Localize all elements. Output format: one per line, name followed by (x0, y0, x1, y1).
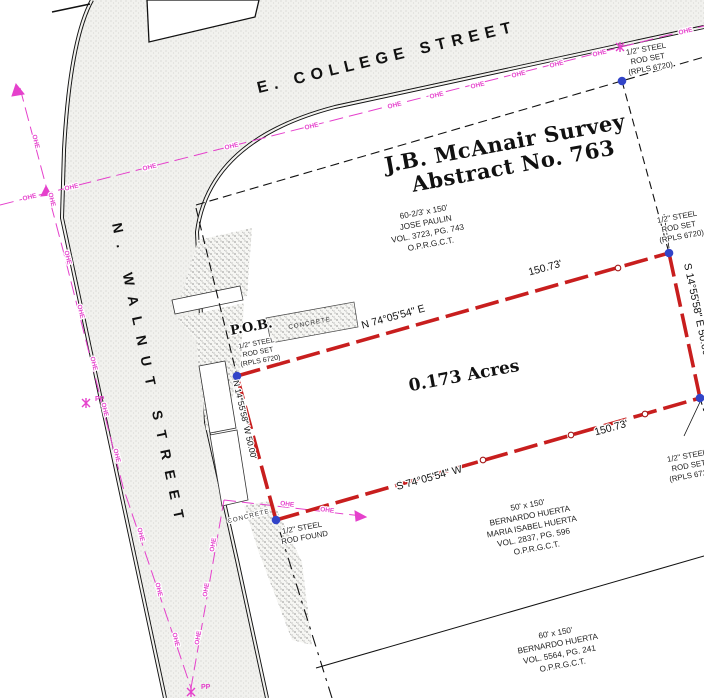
rod-set-note-se: 1/2" STEEL ROD SET (RPLS 6720) (665, 447, 704, 484)
rod-set-note-ne: 1/2" STEEL ROD SET (RPLS 6720) (655, 208, 704, 245)
adjoiner-huerta-south: 50' x 150' BERNARDO HUERTA MARIA ISABEL … (482, 492, 583, 561)
power-pole-icon (82, 398, 90, 408)
ohe-label: OHE (511, 69, 527, 79)
guy-anchor-icon (355, 511, 366, 521)
leader-se-rod (684, 402, 700, 436)
adjoiner-paulin: 60-2/3' x 150' JOSE PAULIN VOL. 3723, PG… (387, 200, 469, 255)
ohe-label: OHE (429, 90, 445, 100)
steel-rod-icon (696, 394, 704, 403)
bearing-south: S 74°05'54" W (395, 463, 464, 493)
plat-drawing: E. COLLEGE STREET N. WALNUT STREET J.B. … (0, 0, 704, 698)
distance-south: 150.73' (593, 418, 629, 439)
ohe-label: OHE (320, 506, 335, 515)
adjoiner-huerta-far-south: 60' x 150' BERNARDO HUERTA VOL. 5564, PG… (515, 621, 605, 677)
rod-set-note-top: 1/2" STEEL ROD SET (RPLS 6720) (624, 40, 674, 77)
steel-rod-icon (272, 516, 281, 525)
ohe-label: OHE (280, 500, 295, 509)
fence-post-icon (480, 457, 486, 463)
pp-label: PP (201, 684, 211, 691)
bearing-east: S 14°55'58" E 50.00' (681, 262, 704, 358)
rod-found-note-sw: 1/2" STEEL ROD FOUND (279, 519, 329, 546)
survey-plat: E. COLLEGE STREET N. WALNUT STREET J.B. … (0, 0, 704, 698)
ohe-label: OHE (22, 192, 38, 202)
survey-title: J.B. McAnair Survey Abstract No. 763 (380, 108, 631, 201)
bearing-north: N 74°05'54" E (360, 303, 426, 332)
steel-rod-icon (618, 77, 627, 86)
area-label: 0.173 Acres (407, 356, 521, 396)
fence-post-icon (615, 265, 621, 271)
ohe-label: OHE (46, 192, 56, 208)
distance-north: 150.73' (527, 258, 563, 279)
fence-post-icon (642, 411, 648, 417)
huerta-division-line (316, 556, 704, 668)
boundary-south (276, 398, 700, 520)
guy-anchor-icon (12, 84, 24, 96)
steel-rod-icon (665, 249, 674, 258)
curb-fragment-topleft (52, 4, 90, 12)
ohe-label: OHE (387, 100, 403, 110)
ohe-label: OHE (470, 80, 486, 90)
ohe-label: OHE (304, 121, 320, 131)
parcel-boundary (237, 253, 700, 520)
ohe-label: OHE (30, 134, 40, 150)
fence-post-icon (568, 432, 574, 438)
